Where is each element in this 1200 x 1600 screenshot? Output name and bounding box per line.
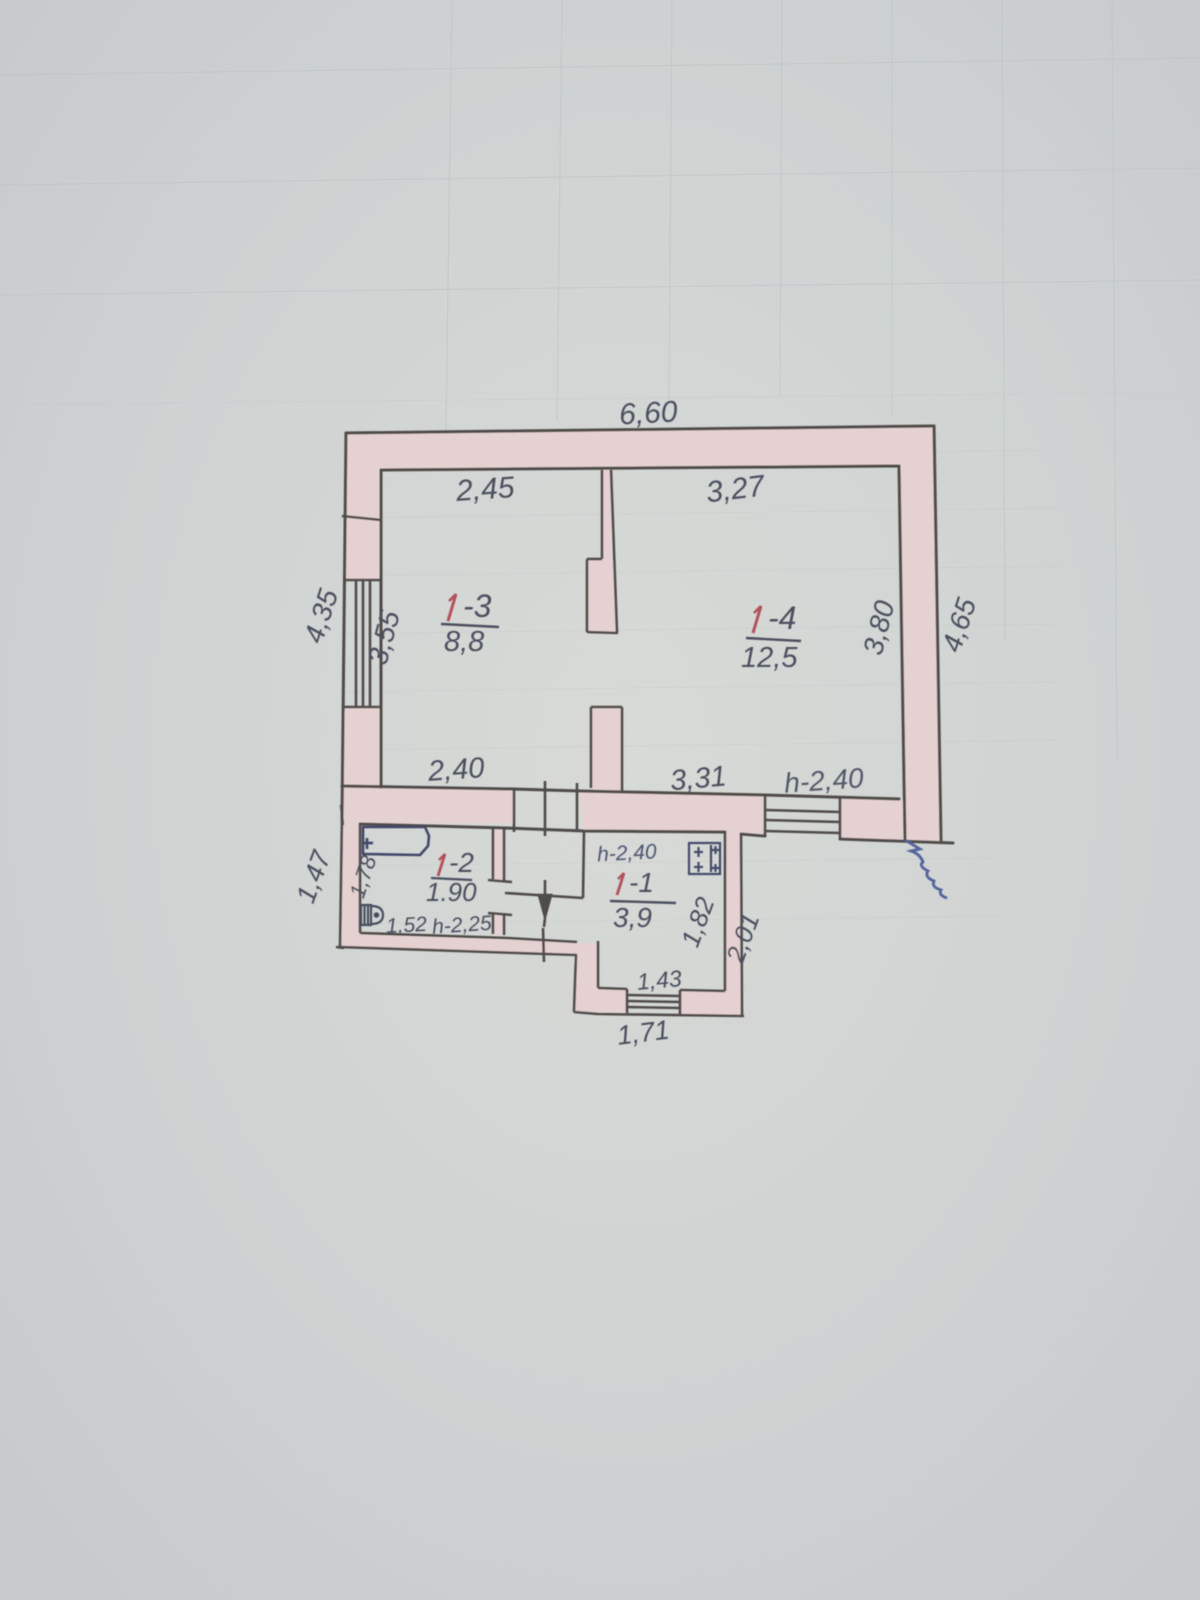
- svg-text:6,60: 6,60: [618, 395, 678, 431]
- svg-text:-2: -2: [449, 847, 474, 878]
- svg-text:-4: -4: [768, 600, 796, 636]
- svg-text:h-2,25: h-2,25: [431, 912, 492, 939]
- svg-text:3,9: 3,9: [613, 902, 652, 933]
- svg-text:8,8: 8,8: [444, 626, 484, 658]
- svg-text:1,52: 1,52: [385, 913, 427, 938]
- svg-text:2,40: 2,40: [426, 752, 486, 788]
- svg-text:1,43: 1,43: [636, 965, 683, 995]
- svg-text:h-2,40: h-2,40: [597, 840, 658, 866]
- svg-text:h-2,40: h-2,40: [783, 762, 865, 798]
- svg-text:1.90: 1.90: [426, 877, 477, 907]
- svg-text:1,71: 1,71: [615, 1015, 671, 1051]
- svg-text:-1: -1: [629, 867, 654, 898]
- svg-text:2,45: 2,45: [454, 471, 516, 508]
- svg-text:3,31: 3,31: [669, 760, 728, 797]
- svg-text:12,5: 12,5: [741, 642, 798, 674]
- svg-text:-3: -3: [463, 588, 492, 624]
